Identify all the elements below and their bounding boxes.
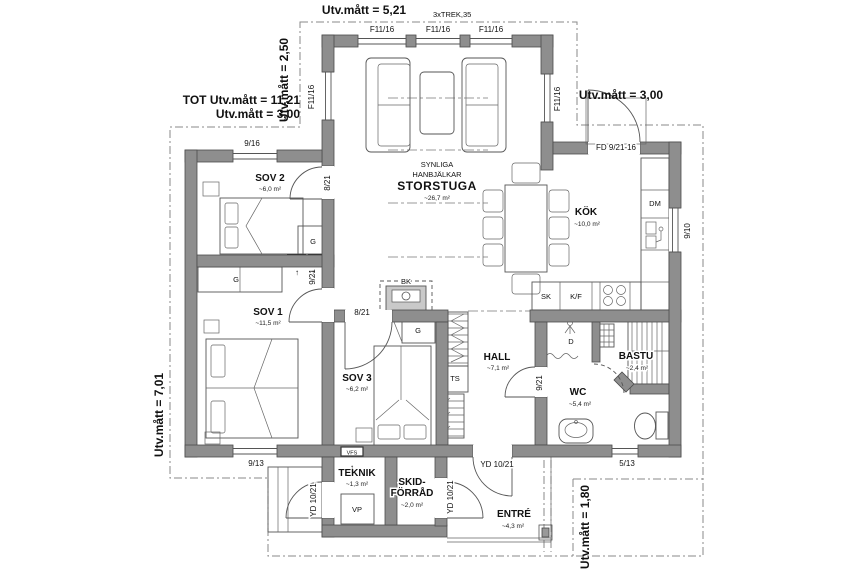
sofa-right: [462, 58, 506, 152]
vfs-arrow-icon: ↑: [350, 463, 354, 472]
dim-top-note: 3xTREK,35: [433, 10, 471, 19]
label-area-sov1: ~11,5 m²: [255, 320, 281, 327]
label-area-bastu: ~2,4 m²: [626, 365, 649, 372]
label-area-teknik: ~1,3 m²: [346, 481, 369, 488]
label-area-sov3: ~6,2 m²: [346, 386, 369, 393]
door-entre-top: [473, 445, 512, 496]
label-door-fd: FD 9/21-16: [596, 143, 637, 152]
kitchen-counter-right: [641, 158, 669, 310]
window-513: [612, 445, 638, 457]
label-window-f11-left: F11/16: [307, 84, 316, 109]
floorplan-page: Utv.mått = 5,21 3xTREK,35 Utv.mått = 2,5…: [0, 0, 864, 576]
label-shower-d: D: [568, 337, 574, 346]
label-area-entre: ~4,3 m²: [502, 523, 525, 530]
dim-left-total: TOT Utv.mått = 11,21: [183, 93, 301, 107]
wardrobe-sov1: [198, 267, 282, 292]
entry-porch: [447, 457, 552, 542]
label-room-sov1: SOV 1: [253, 307, 283, 318]
dining-set: [483, 163, 569, 294]
label-room-entre: ENTRÉ: [497, 507, 531, 520]
label-fridge-freezer: K/F: [570, 292, 582, 301]
label-door-sov3: 8/21: [354, 308, 370, 317]
label-dishwasher: DM: [649, 199, 661, 208]
window-913: [233, 445, 277, 457]
floorplan-drawing: Utv.mått = 5,21 3xTREK,35 Utv.mått = 2,5…: [0, 0, 864, 576]
label-heat-pump: VP: [352, 505, 362, 514]
label-door-yd-skid: YD 10/21: [446, 480, 455, 514]
label-area-skid: ~2,0 m²: [401, 502, 424, 509]
dim-top: Utv.mått = 5,21: [322, 3, 406, 17]
label-window-910: 9/10: [683, 223, 692, 239]
label-sk-cabinet: SK: [541, 292, 551, 301]
label-room-bastu: BASTU: [619, 351, 653, 362]
label-note-hanbjalkar: HANBJÄLKAR: [412, 170, 462, 179]
sauna-benches: [628, 316, 669, 384]
label-room-sov2: SOV 2: [255, 173, 285, 184]
window-916: [233, 150, 277, 162]
label-wardrobe-sov1: G: [233, 275, 239, 284]
label-window-f11-right: F11/16: [553, 86, 562, 111]
label-area-wc: ~5,4 m²: [569, 401, 592, 408]
label-room-sov3: SOV 3: [342, 373, 372, 384]
label-door-wc: 9/21: [535, 375, 544, 391]
label-window-913: 9/13: [248, 459, 264, 468]
label-door-sov2: 8/21: [323, 175, 332, 191]
supply-arrow-icon-2: ↑: [311, 268, 315, 277]
dim-bottom-right-vertical: Utv.mått = 1,80: [578, 485, 592, 569]
label-room-skid-2: FÖRRÅD: [391, 486, 434, 499]
label-window-f11-3: F11/16: [479, 25, 504, 34]
window-f11-1: [358, 35, 406, 47]
coffee-table: [420, 72, 454, 134]
label-window-916: 9/16: [244, 139, 260, 148]
label-window-f11-2: F11/16: [426, 25, 451, 34]
label-area-storstuga: ~26,7 m²: [424, 195, 451, 202]
label-room-storstuga: STORSTUGA: [397, 179, 477, 193]
window-f11-3: [470, 35, 512, 47]
dim-left-vertical: Utv.mått = 7,01: [152, 373, 166, 457]
label-door-yd-teknik: YD 10/21: [309, 483, 318, 517]
label-room-skid-1: SKID-: [398, 477, 425, 488]
supply-arrow-icon-1: ↑: [295, 268, 299, 277]
label-door-yd-entre: YD 10/21: [480, 460, 514, 469]
bed-sov1: [204, 320, 298, 444]
window-f11-right: [541, 74, 553, 122]
toilet: [635, 412, 669, 439]
label-room-hall: HALL: [484, 352, 511, 363]
dim-top-right: Utv.mått = 3,00: [579, 88, 663, 102]
label-area-sov2: ~6,0 m²: [259, 186, 282, 193]
label-window-513: 5/13: [619, 459, 635, 468]
dim-left-sub: Utv.mått = 3,00: [216, 107, 300, 121]
door-bastu: [594, 364, 624, 394]
furniture: [198, 58, 669, 542]
bed-sov3: [356, 346, 431, 446]
label-stairs-ts: TS: [450, 374, 460, 383]
label-room-wc: WC: [570, 387, 587, 398]
label-wardrobe-sov2: G: [310, 237, 316, 246]
wc-sink: [559, 419, 593, 443]
label-room-kok: KÖK: [575, 205, 598, 218]
label-note-synliga: SYNLIGA: [421, 160, 454, 169]
sauna-heater: [599, 324, 614, 347]
label-wardrobe-sov3: G: [415, 326, 421, 335]
door-sov1: [289, 288, 334, 322]
door-skidforrad: [435, 478, 483, 518]
sofa-left: [366, 58, 410, 152]
label-room-teknik: TEKNIK: [338, 468, 376, 479]
label-wood-stove-bk: BK: [401, 277, 411, 286]
window-910: [669, 208, 681, 252]
window-f11-2: [416, 35, 460, 47]
label-area-hall: ~7,1 m²: [487, 365, 510, 372]
door-sov3: [345, 310, 392, 369]
bed-sov2: [203, 182, 303, 254]
label-vfs: VFS: [347, 451, 358, 457]
label-window-f11-1: F11/16: [370, 25, 395, 34]
window-f11-left: [322, 72, 334, 120]
label-area-kok: ~10,0 m²: [574, 221, 601, 228]
